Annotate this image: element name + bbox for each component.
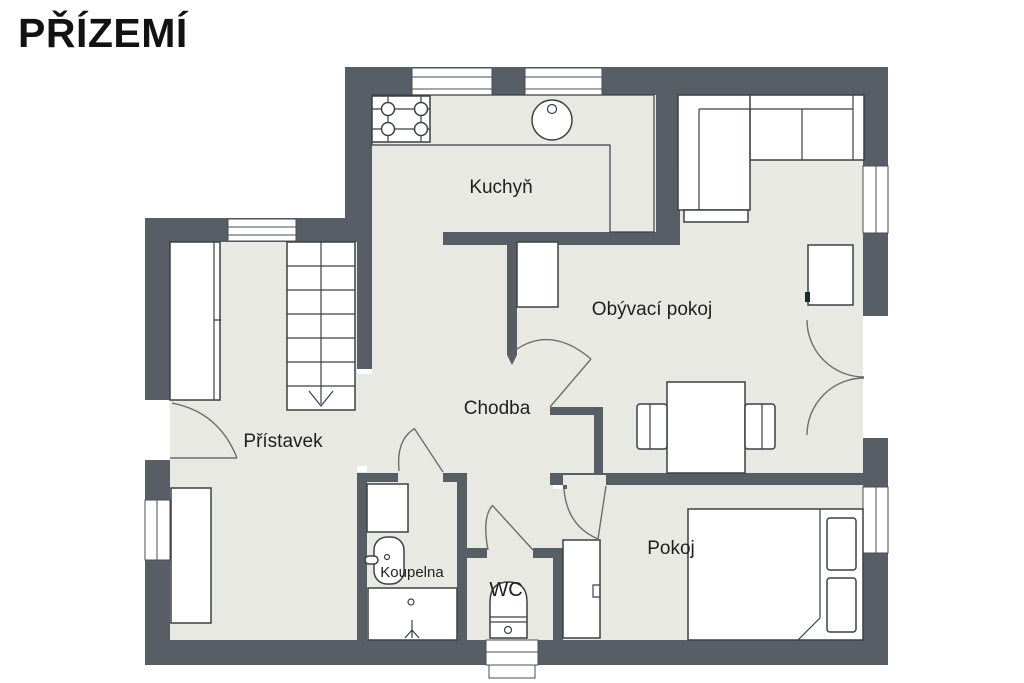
window-kitchen-1 bbox=[412, 68, 492, 95]
tv-icon bbox=[805, 292, 810, 302]
jamb-cap bbox=[357, 466, 367, 472]
opening-french-door bbox=[863, 316, 888, 438]
wall-bath-left bbox=[357, 473, 367, 640]
room-label-pristavek: Přístavek bbox=[243, 431, 323, 452]
washing-machine-icon bbox=[367, 484, 408, 532]
room-label-koupelna: Koupelna bbox=[380, 564, 444, 581]
window-pristavek-top bbox=[228, 219, 296, 241]
stairs bbox=[287, 242, 355, 410]
cabinet bbox=[517, 242, 558, 307]
wall-stub bbox=[507, 232, 517, 355]
chair bbox=[745, 404, 775, 449]
wall-chodba-b bbox=[594, 407, 603, 482]
bed bbox=[688, 509, 863, 640]
room-label-wc: WC bbox=[489, 579, 522, 601]
wall-kitchen-left bbox=[345, 67, 372, 242]
pillow bbox=[827, 518, 856, 570]
floorplan-drawing: Kuchyň Obývací pokoj Chodba Přístavek Ko… bbox=[0, 0, 1024, 683]
sink-icon bbox=[532, 100, 572, 140]
jamb-cap bbox=[553, 485, 563, 489]
room-label-pokoj: Pokoj bbox=[647, 538, 695, 559]
room-label-kuchyn: Kuchyň bbox=[469, 177, 532, 198]
tv-cabinet bbox=[808, 245, 853, 305]
wardrobe bbox=[171, 488, 211, 623]
jamb-cap bbox=[357, 369, 372, 374]
wall-bath-wc bbox=[457, 473, 467, 640]
wardrobe bbox=[563, 540, 600, 638]
chair bbox=[637, 404, 667, 449]
wall-wc-top-left bbox=[467, 548, 487, 558]
room-label-chodba: Chodba bbox=[464, 398, 531, 419]
floorplan-page: PŘÍZEMÍ bbox=[0, 0, 1024, 683]
opening-pristavek-door bbox=[145, 400, 170, 460]
pillow bbox=[827, 578, 856, 632]
wall-wc-right bbox=[553, 548, 563, 640]
wall-kitchen-bottom bbox=[443, 232, 680, 245]
wardrobe bbox=[170, 242, 220, 400]
opening-pokoj-door bbox=[563, 475, 606, 485]
dining-table bbox=[667, 382, 745, 473]
wall-kitchen-living bbox=[656, 95, 680, 232]
wall-stairs bbox=[357, 242, 372, 373]
entrance-step-lower bbox=[489, 665, 535, 678]
bathtub-icon bbox=[368, 588, 457, 640]
window-kitchen-2 bbox=[525, 68, 602, 95]
room-label-obyvaci-pokoj: Obývací pokoj bbox=[592, 299, 712, 320]
